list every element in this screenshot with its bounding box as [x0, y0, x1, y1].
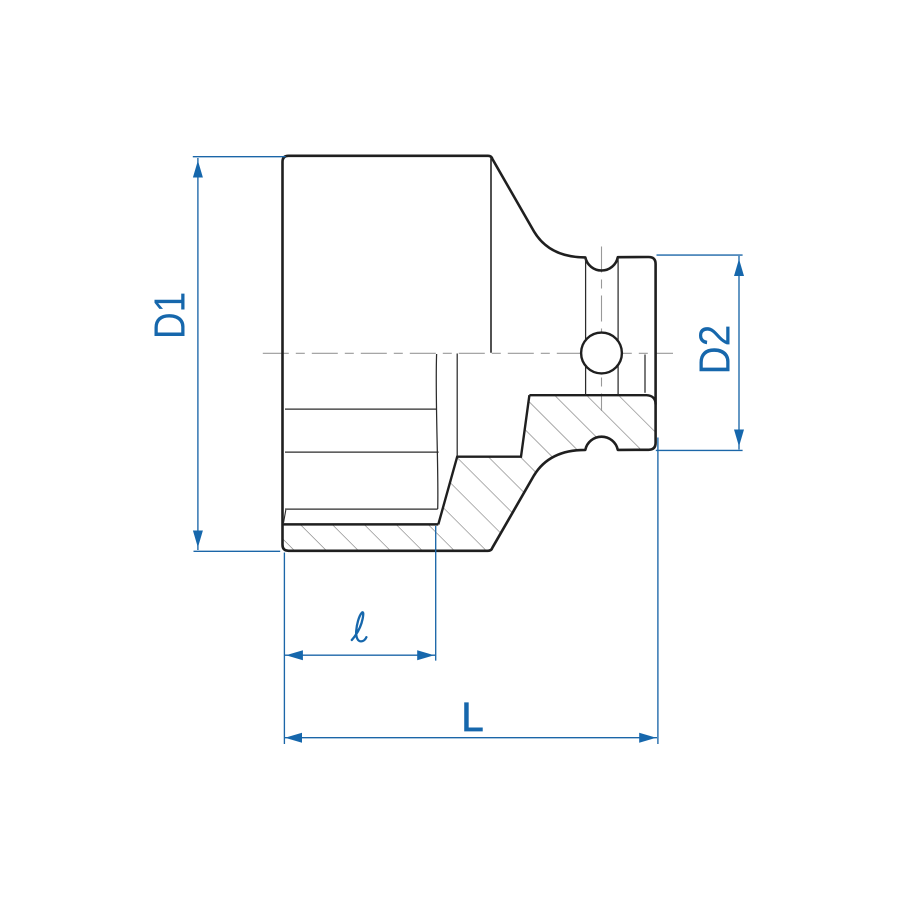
svg-text:D1: D1 — [145, 292, 195, 339]
svg-text:L: L — [461, 694, 483, 740]
svg-text:D2: D2 — [691, 325, 739, 375]
